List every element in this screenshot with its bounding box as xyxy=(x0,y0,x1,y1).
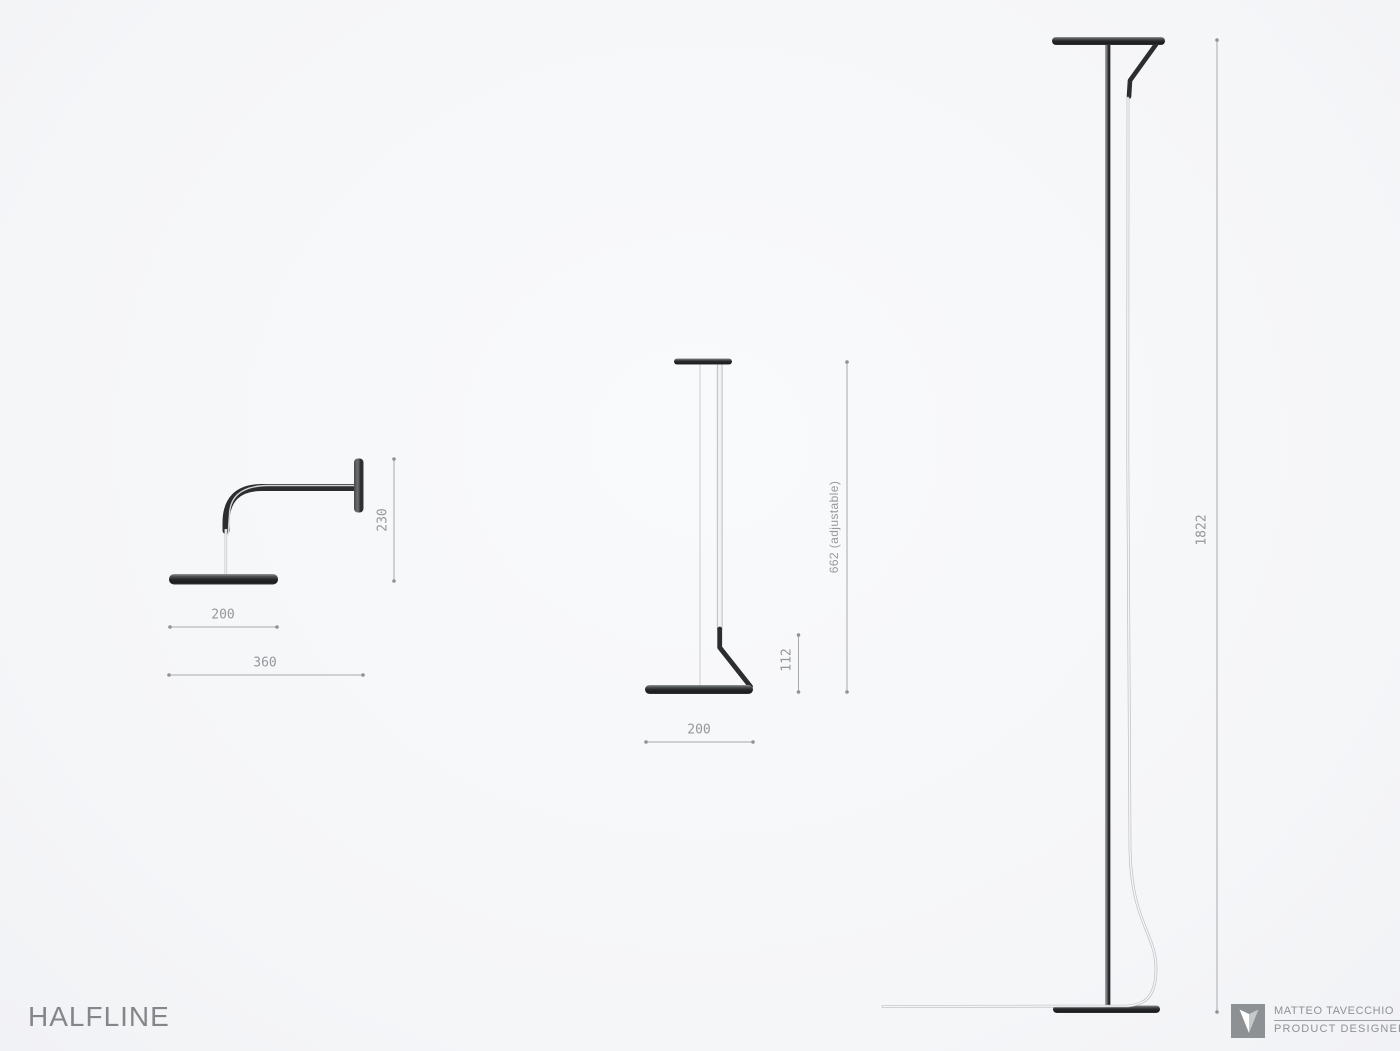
dimension-endpoint-dot xyxy=(797,690,801,694)
wall-height-dimension-label: 230 xyxy=(376,508,391,531)
pendant-suspension-rod xyxy=(717,363,722,631)
designer-credit: MATTEO TAVECCHIO PRODUCT DESIGNER xyxy=(1231,1004,1400,1038)
pendant-shade-disc xyxy=(645,685,753,694)
dimension-endpoint-dot xyxy=(275,625,279,629)
floor-lamp-pole xyxy=(1105,44,1110,1008)
pendant-elbow-arm xyxy=(720,629,751,687)
dimension-endpoint-dot xyxy=(1215,38,1219,42)
floor-lamp-hook-arm xyxy=(1129,41,1159,97)
pendant-lamp-drawing xyxy=(645,359,753,695)
floor-lamp-cord xyxy=(883,98,1156,1007)
floor-lamp-drawing xyxy=(883,37,1165,1013)
dimension-endpoint-dot xyxy=(392,457,396,461)
pendant-ceiling-plate xyxy=(674,359,732,365)
designer-credit-text: MATTEO TAVECCHIO PRODUCT DESIGNER xyxy=(1274,1004,1400,1035)
lamp-linework xyxy=(0,0,1400,1051)
floor-height-dimension-label: 1822 xyxy=(1195,514,1210,545)
floor-lamp-cord-outline xyxy=(883,98,1156,1007)
wall-lamp-arm xyxy=(226,488,360,531)
dimension-endpoint-dot xyxy=(168,625,172,629)
wall-lamp-shade-disc xyxy=(169,574,278,585)
pendant-drop-dimension-label: 662 (adjustable) xyxy=(827,481,841,573)
dimension-endpoint-dot xyxy=(167,673,171,677)
wall-total-width-dimension-label: 360 xyxy=(253,656,276,671)
dimension-endpoint-dot xyxy=(797,633,801,637)
pendant-elbow-dimension-label: 112 xyxy=(780,648,795,671)
dimension-endpoint-dot xyxy=(1215,1010,1219,1014)
pendant-shade-width-dimension-label: 200 xyxy=(687,723,710,738)
product-title: HALFLINE xyxy=(28,1001,170,1033)
designer-logo-icon xyxy=(1231,1004,1265,1038)
dimension-endpoint-dot xyxy=(751,740,755,744)
designer-name: MATTEO TAVECCHIO xyxy=(1274,1005,1400,1021)
dimension-endpoint-dot xyxy=(392,579,396,583)
technical-drawing-sheet: 230 200 360 662 (adjustable) 112 200 182… xyxy=(0,0,1400,1051)
floor-lamp-head-disc xyxy=(1052,37,1165,45)
dimension-endpoint-dot xyxy=(845,360,849,364)
wall-lamp-wall-plate xyxy=(354,459,364,513)
dimension-endpoint-dot xyxy=(845,690,849,694)
wall-shade-width-dimension-label: 200 xyxy=(211,608,234,623)
designer-role: PRODUCT DESIGNER xyxy=(1274,1021,1400,1035)
dimension-endpoint-dot xyxy=(644,740,648,744)
dimension-endpoint-dot xyxy=(361,673,365,677)
wall-lamp-drawing xyxy=(169,459,364,585)
